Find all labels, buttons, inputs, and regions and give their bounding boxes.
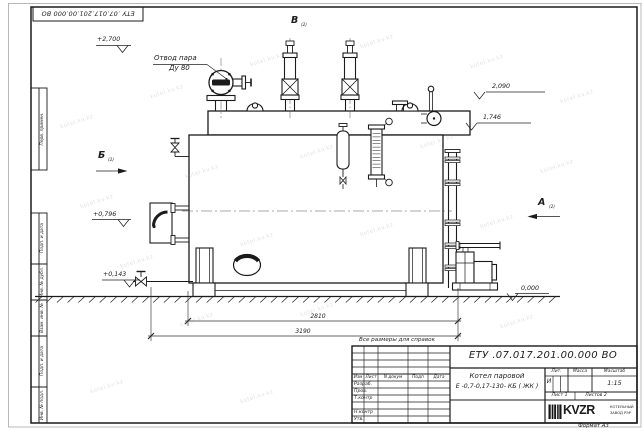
col-izm: Изм xyxy=(354,376,363,380)
steam-outlet-valve xyxy=(207,58,251,118)
elevation-2090: 2,090 xyxy=(492,84,510,90)
reference-note: Все размеры для справок xyxy=(359,338,435,344)
side-valve xyxy=(171,139,190,157)
drawing-sheet: ЕТУ .07.017.201.00.000 ВО Перв. примен. … xyxy=(0,0,644,430)
row-utv: Утв. xyxy=(354,418,364,423)
massa-header: Масса xyxy=(573,370,587,375)
elevation-0143: +0,143 xyxy=(103,272,126,278)
row-t-kontr: Т.контр xyxy=(354,397,372,402)
view-b-sheet-ref: (2) xyxy=(108,158,114,162)
view-v-sheet-ref: (2) xyxy=(301,23,307,27)
kvzr-logo-mark xyxy=(549,405,562,420)
product-name-line2: Е -0,7-0,17-130- КБ ( ЖК ) xyxy=(456,384,539,390)
view-b-label: Б xyxy=(98,151,105,161)
steam-outlet-label-line1: Отвод пара xyxy=(154,55,197,62)
elevation-1746: 1,746 xyxy=(483,115,501,121)
dim-3190: 3190 xyxy=(295,329,310,335)
sheets-total: Листов 2 xyxy=(585,394,607,399)
row-razrab: Разраб. xyxy=(354,383,372,388)
margin-box-podp-i-data-2: Подп. и дата xyxy=(41,346,45,376)
top-left-stamp: ЕТУ .07.017.201.00.000 ВО xyxy=(41,10,134,16)
steam-outlet-label-line2: Ду 80 xyxy=(169,65,190,72)
margin-box-inv-dubl: Инв. № дубл. xyxy=(41,267,45,297)
row-n-kontr: Н.контр xyxy=(354,411,373,416)
col-n-dokum: N докум xyxy=(384,376,403,380)
margin-box-inv-podl: Инв. № подл. xyxy=(41,390,45,420)
col-data: Дата xyxy=(433,376,444,380)
col-podp: Подп xyxy=(412,376,424,380)
view-a-label: А xyxy=(538,198,545,208)
kvzr-logo-sub1: КОТЕЛЬНЫЙ xyxy=(610,406,634,410)
kvzr-logo-sub2: ЗАВОД РЭР xyxy=(610,412,631,416)
elevation-0796: +0,796 xyxy=(93,212,116,218)
col-list: Лист xyxy=(366,376,377,380)
manhole xyxy=(234,255,261,276)
scale-value: 1:15 xyxy=(607,380,622,387)
lit-value: И xyxy=(547,379,552,385)
doc-number: ЕТУ .07.017.201.00.000 ВО xyxy=(469,351,617,361)
drain-valve xyxy=(133,272,193,287)
elevation-0000: 0,000 xyxy=(521,286,539,292)
dim-2810: 2810 xyxy=(310,314,325,320)
elevation-2700: +2,700 xyxy=(97,37,120,43)
format-label: Формат А3 xyxy=(578,424,609,429)
row-prov: Пров. xyxy=(354,390,367,395)
margin-box-vzam-inv: Взам. инв. № xyxy=(41,303,45,333)
view-v-label: В xyxy=(291,16,298,26)
boiler-drawing xyxy=(133,38,500,297)
lit-header: Лит. xyxy=(551,370,561,375)
sheet-number: Лист 1 xyxy=(551,394,567,399)
ground-line xyxy=(35,297,560,303)
masshtab-header: Масштаб xyxy=(604,370,625,375)
kvzr-logo-text: KVZR xyxy=(563,404,595,417)
burner-unit xyxy=(150,203,189,245)
margin-box-podp-i-data-1: Подп. и дата xyxy=(41,223,45,253)
safety-valve xyxy=(281,38,299,118)
margin-box-perv-primen: Перв. примен. xyxy=(41,113,45,146)
product-name-line1: Котел паровой xyxy=(470,373,525,380)
view-a-sheet-ref: (2) xyxy=(549,205,555,209)
